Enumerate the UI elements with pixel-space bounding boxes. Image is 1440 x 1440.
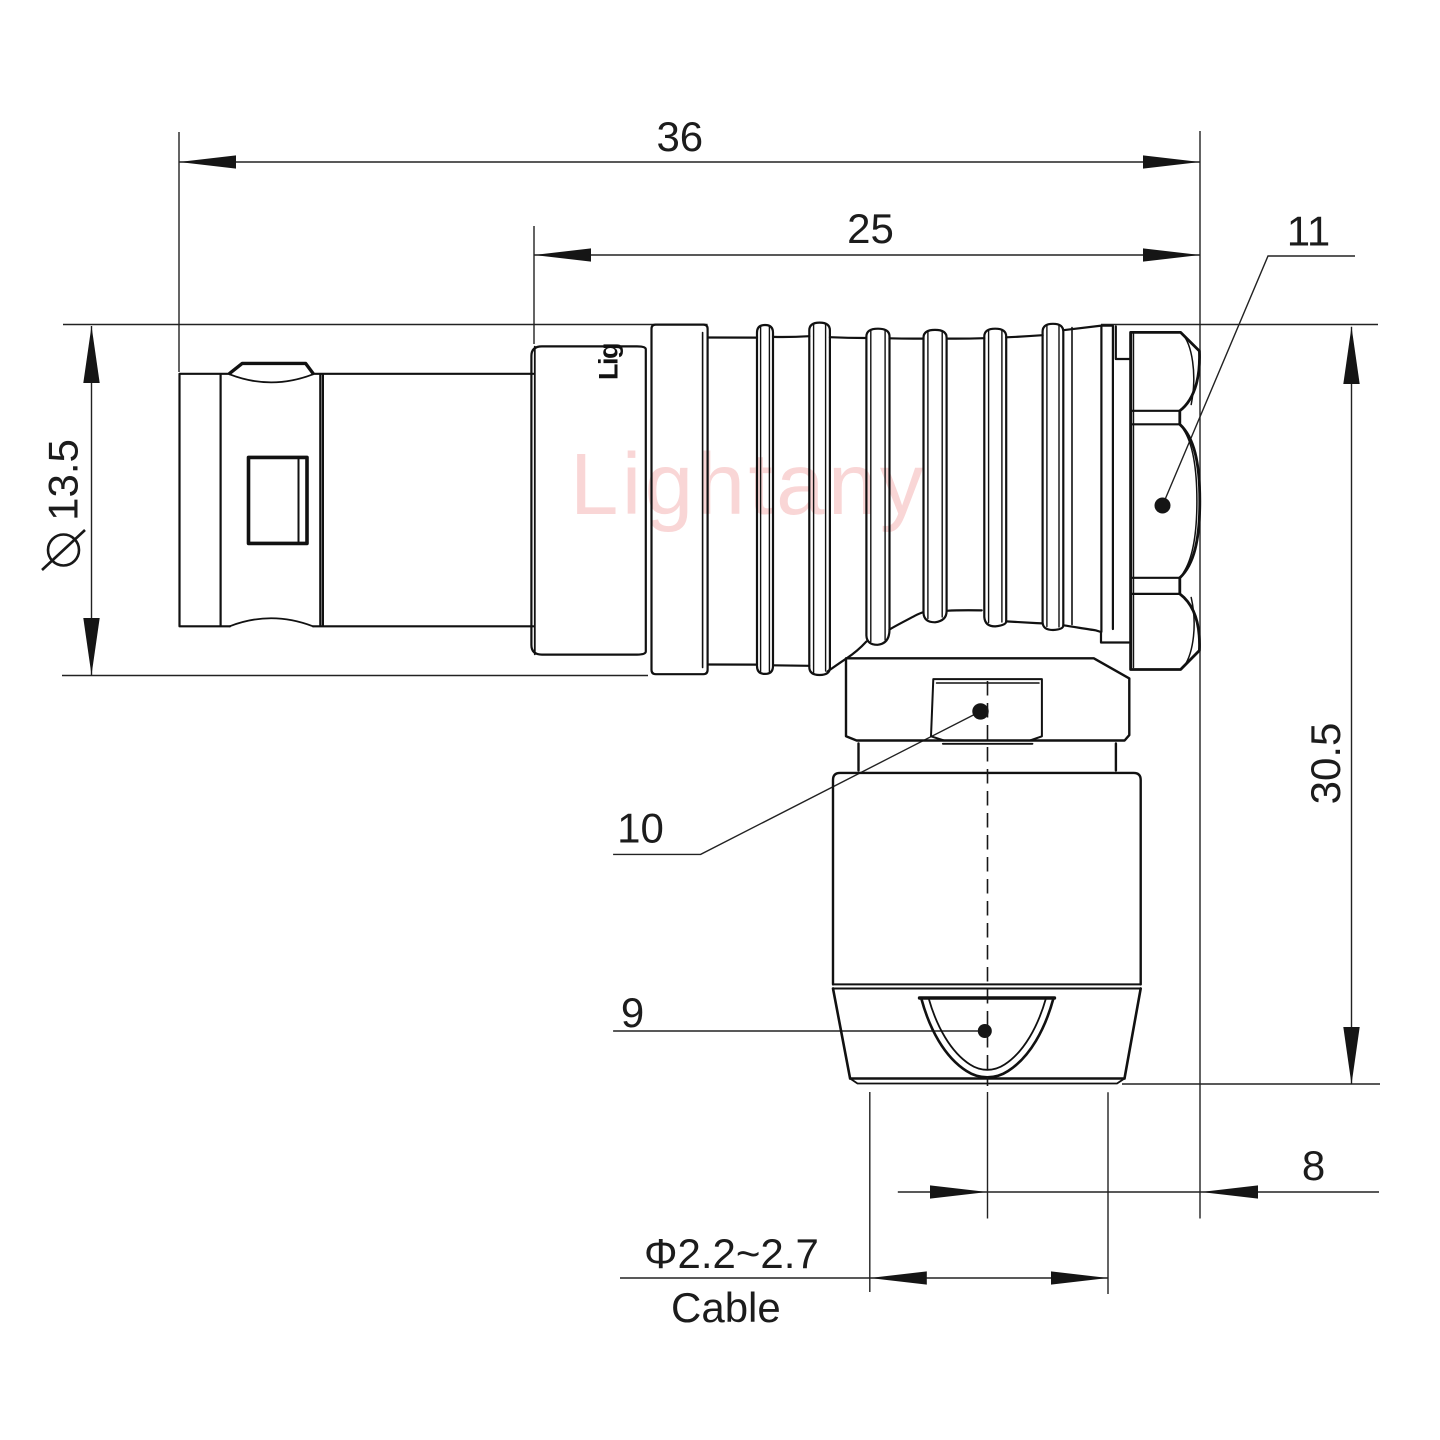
svg-text:30.5: 30.5 (1302, 723, 1349, 805)
svg-text:Φ2.2~2.7: Φ2.2~2.7 (644, 1230, 819, 1277)
svg-text:25: 25 (847, 205, 894, 252)
svg-text:9: 9 (621, 989, 644, 1036)
svg-text:8: 8 (1302, 1142, 1325, 1189)
svg-text:Lig: Lig (594, 344, 624, 380)
svg-text:Lightany: Lightany (570, 436, 927, 533)
svg-text:Cable: Cable (671, 1284, 781, 1331)
svg-text:10: 10 (617, 805, 664, 852)
svg-text:13.5: 13.5 (40, 439, 87, 521)
svg-text:36: 36 (656, 113, 703, 160)
svg-text:11: 11 (1287, 208, 1331, 255)
